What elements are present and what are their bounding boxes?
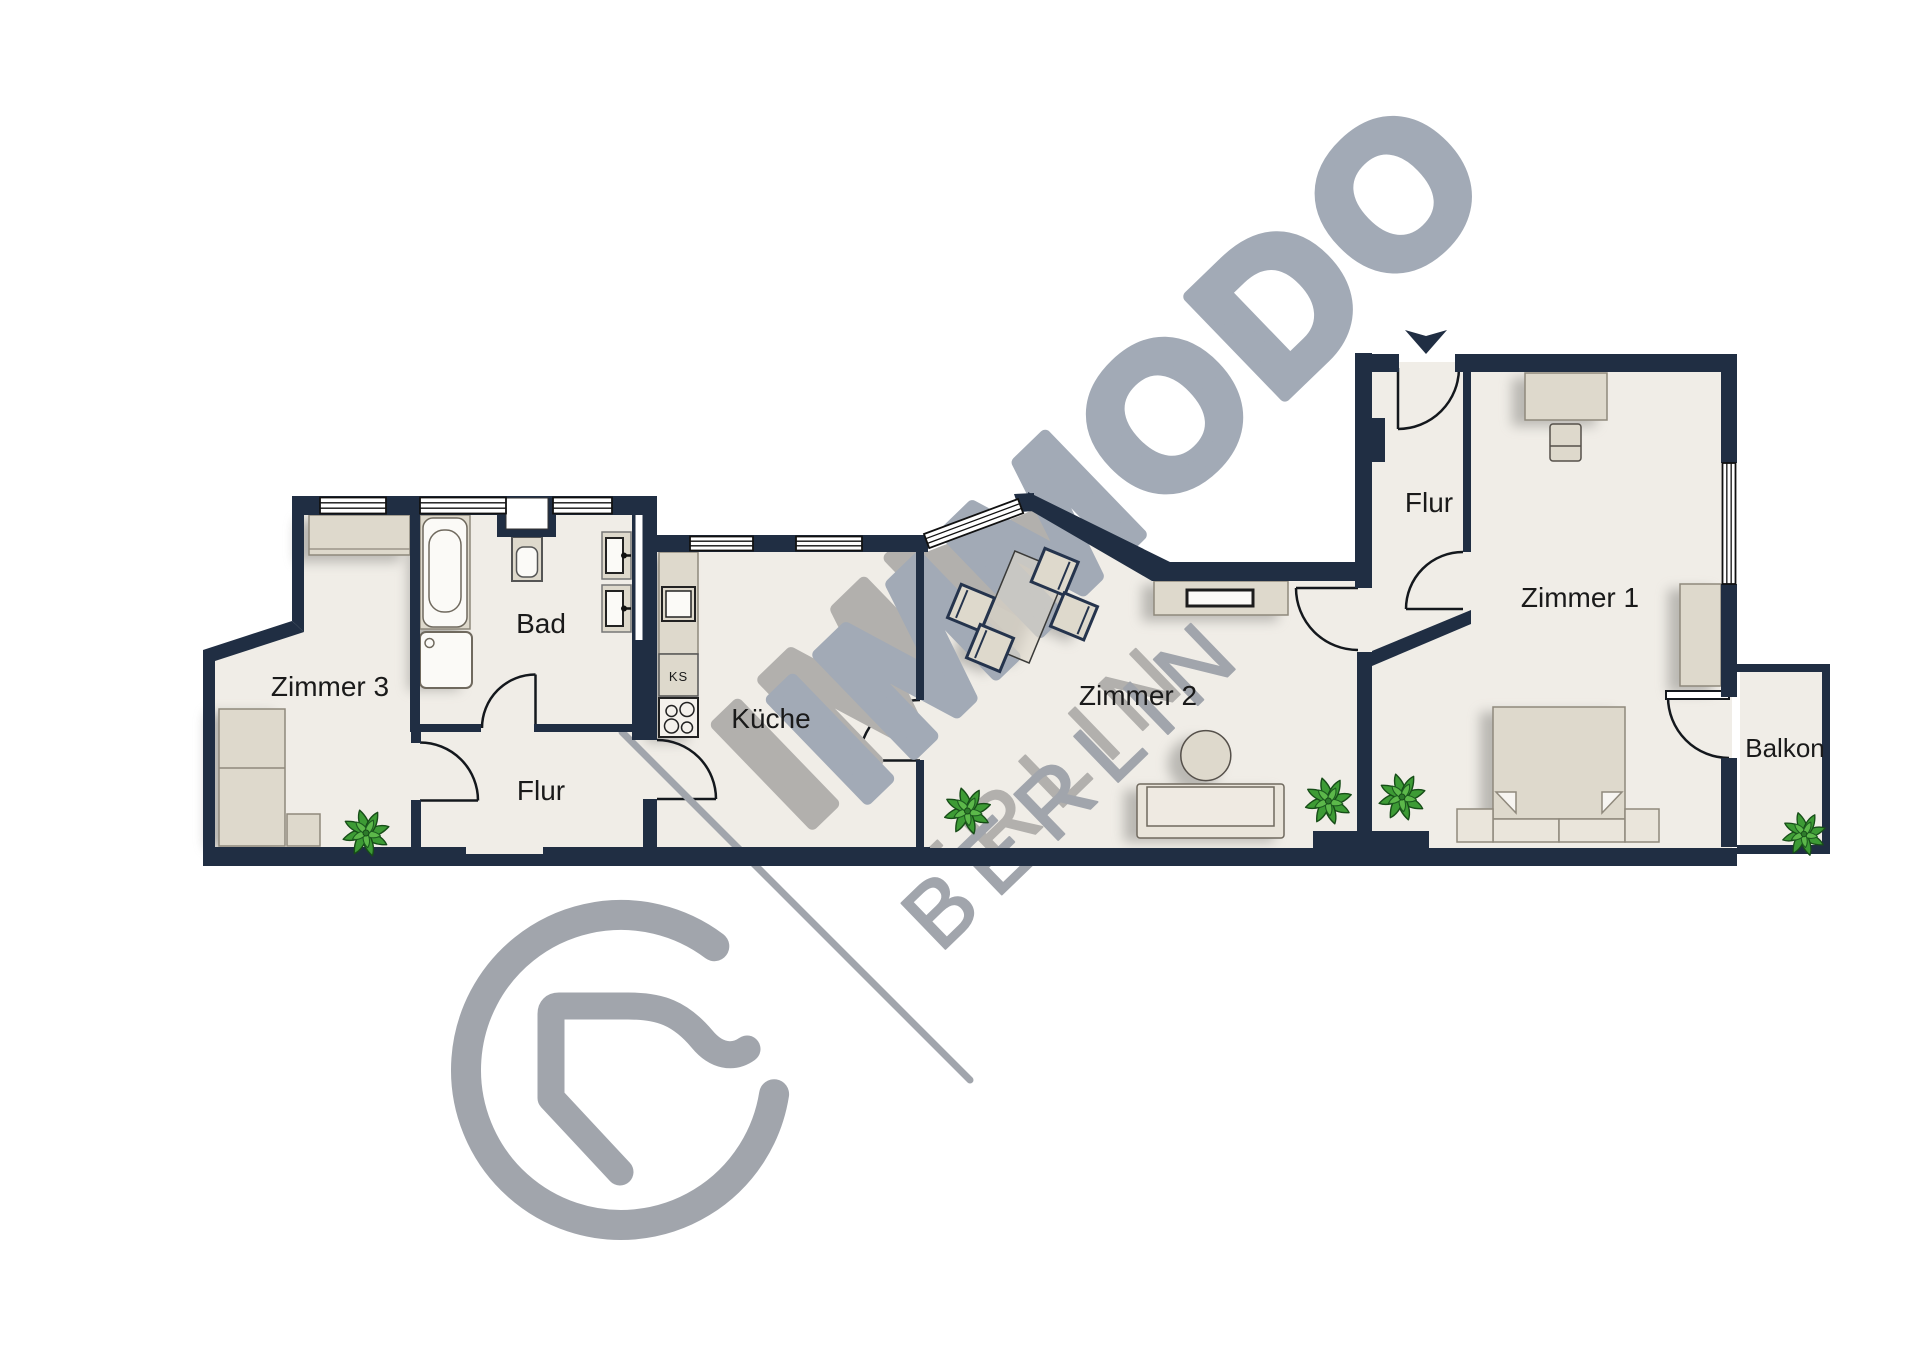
svg-text:Zimmer 1: Zimmer 1 xyxy=(1521,582,1639,613)
svg-text:Bad: Bad xyxy=(516,608,566,639)
svg-text:KS: KS xyxy=(669,669,688,684)
svg-text:Balkon: Balkon xyxy=(1745,733,1825,763)
svg-text:Flur: Flur xyxy=(517,775,565,806)
svg-text:Küche: Küche xyxy=(731,703,810,734)
svg-text:Flur: Flur xyxy=(1405,487,1453,518)
svg-text:Zimmer 2: Zimmer 2 xyxy=(1079,680,1197,711)
svg-text:Zimmer 3: Zimmer 3 xyxy=(271,671,389,702)
